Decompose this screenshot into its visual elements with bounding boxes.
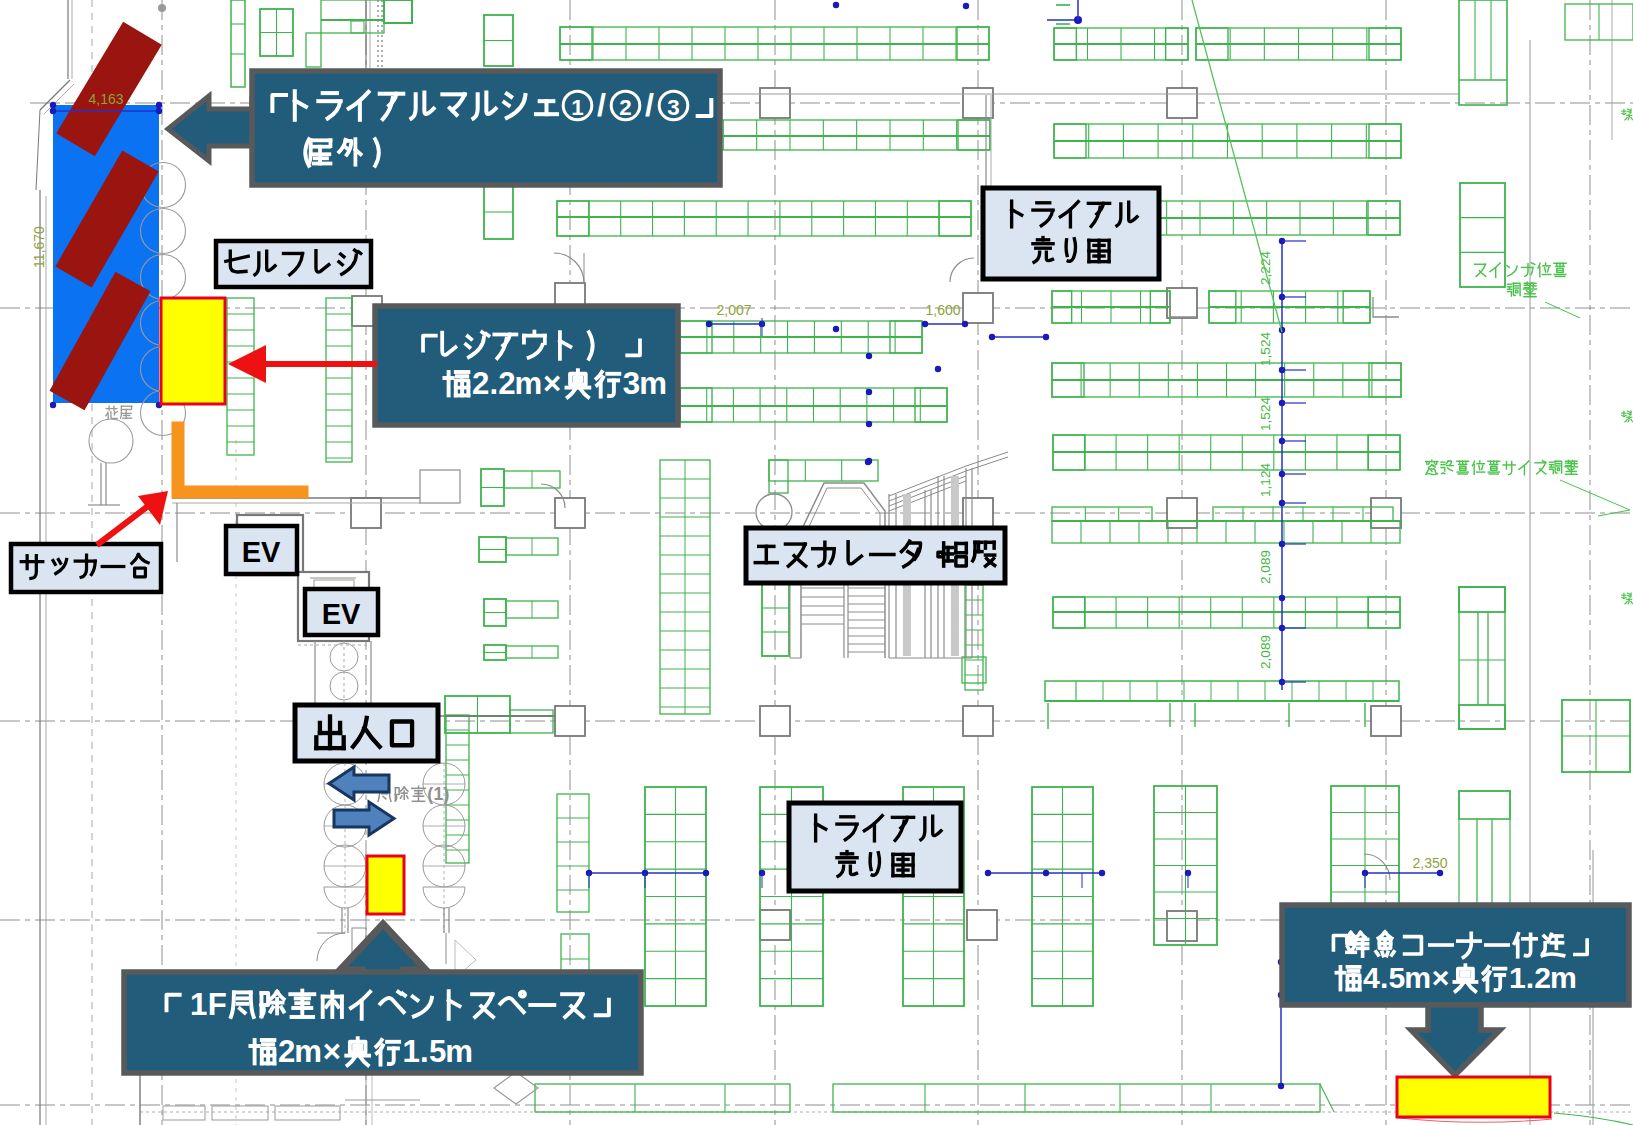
svg-text:×: ×: [543, 366, 561, 401]
svg-text:2: 2: [619, 95, 631, 120]
svg-text:m: m: [515, 366, 543, 401]
svg-text:5: 5: [1388, 961, 1405, 994]
svg-text:m: m: [639, 366, 667, 401]
svg-text:m: m: [294, 1034, 322, 1069]
svg-text:F: F: [208, 987, 227, 1022]
svg-text:EV: EV: [242, 536, 281, 568]
svg-text:4: 4: [1363, 961, 1380, 994]
svg-text:.: .: [420, 1034, 429, 1069]
svg-text:2: 2: [1534, 961, 1551, 994]
svg-text:3: 3: [667, 95, 679, 120]
svg-text:×: ×: [323, 1034, 341, 1069]
svg-text:.: .: [1526, 961, 1534, 994]
svg-text:1: 1: [403, 1034, 420, 1069]
svg-text:1: 1: [1509, 961, 1526, 994]
svg-text:5: 5: [429, 1034, 446, 1069]
svg-text:×: ×: [1432, 961, 1450, 994]
svg-text:2: 2: [278, 1034, 295, 1069]
svg-text:EV: EV: [322, 598, 361, 630]
svg-text:1: 1: [571, 95, 583, 120]
svg-text:m: m: [1550, 961, 1577, 994]
svg-text:.: .: [489, 366, 498, 401]
svg-text:2: 2: [498, 366, 515, 401]
svg-text:.: .: [1380, 961, 1388, 994]
svg-text:2: 2: [472, 366, 489, 401]
svg-text:/: /: [645, 87, 654, 123]
svg-text:3: 3: [623, 366, 640, 401]
svg-text:m: m: [445, 1034, 473, 1069]
svg-text:m: m: [1404, 961, 1431, 994]
svg-text:/: /: [597, 87, 606, 123]
svg-text:1: 1: [190, 987, 207, 1022]
